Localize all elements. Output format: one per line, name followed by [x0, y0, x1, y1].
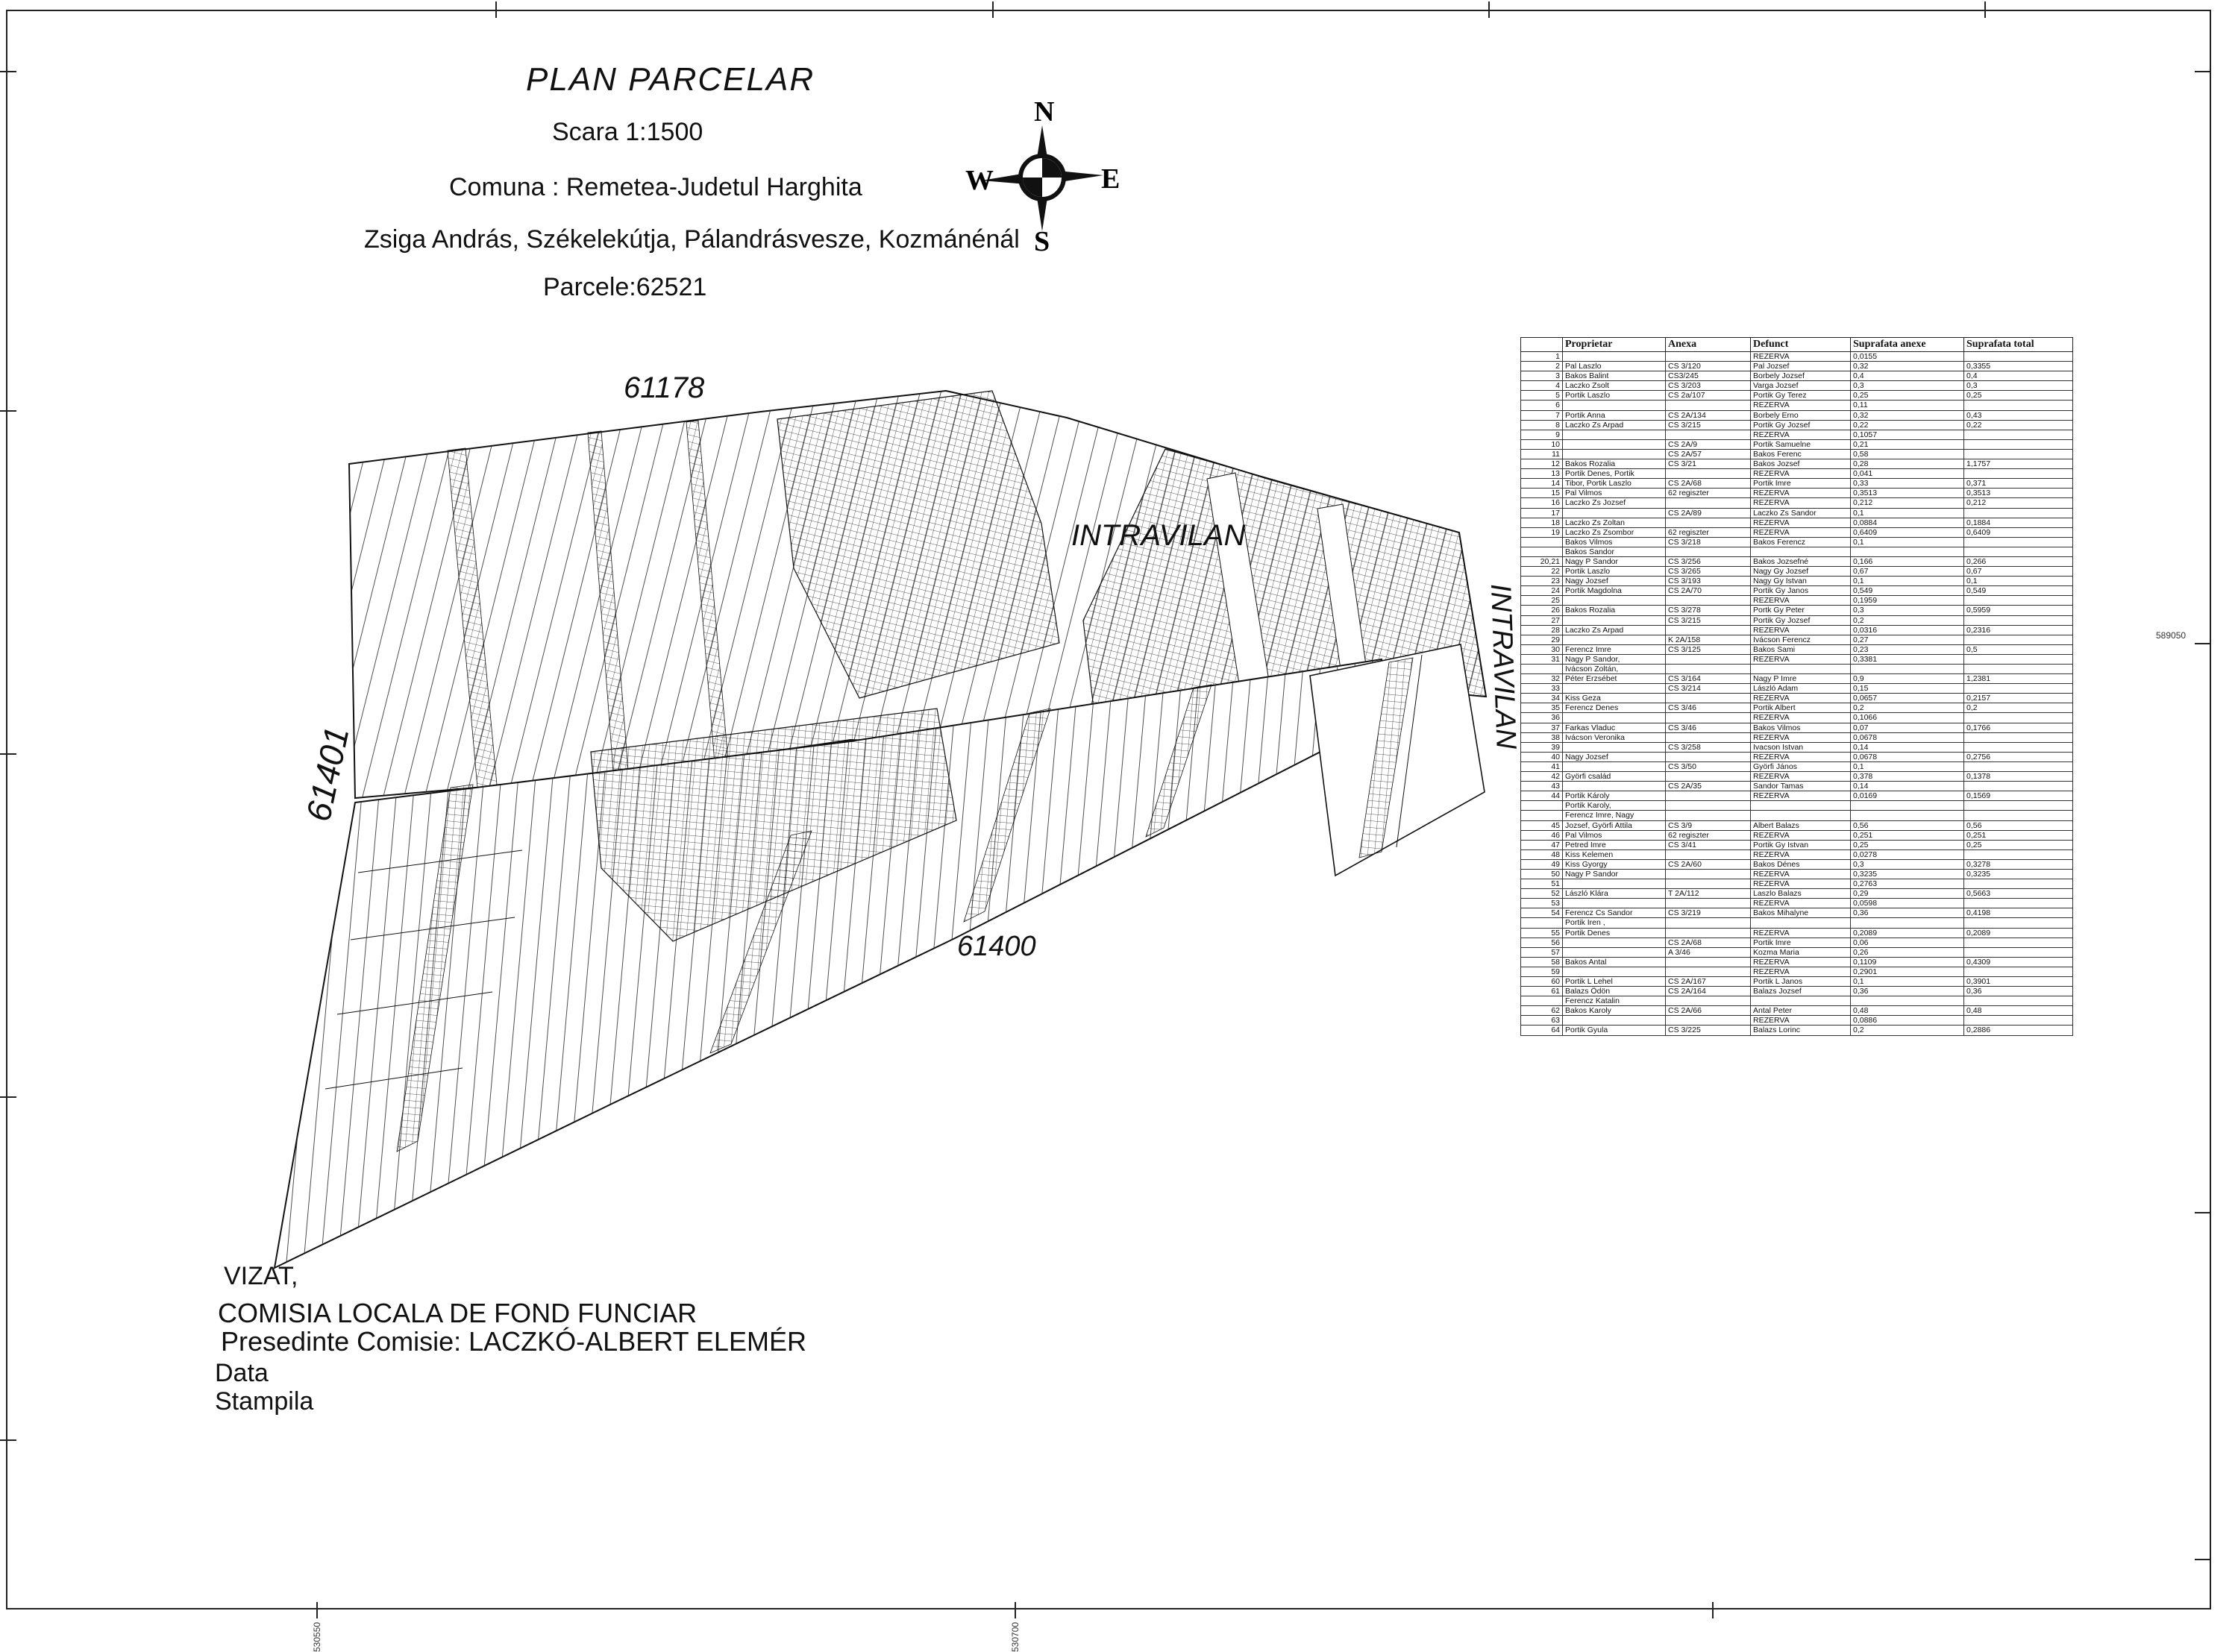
- cell-num: 47: [1521, 840, 1563, 849]
- cell-num: 6: [1521, 401, 1563, 410]
- cell-anexa: [1666, 713, 1751, 723]
- cell-suprafata-total: [1964, 449, 2073, 459]
- cell-suprafata-total: [1964, 430, 2073, 439]
- cell-defunct: Bakos Vilmos: [1751, 723, 1851, 732]
- cell-suprafata-total: 0,3235: [1964, 869, 2073, 879]
- cell-anexa: CS 3/215: [1666, 420, 1751, 430]
- cell-anexa: CS 2a/107: [1666, 391, 1751, 401]
- cell-num: 13: [1521, 469, 1563, 479]
- table-row: Ivácson Zoltán,: [1521, 665, 2073, 674]
- cell-defunct: László Adam: [1751, 684, 1851, 694]
- table-row: 6 REZERVA 0,11: [1521, 401, 2073, 410]
- cell-suprafata-anexe: 0,0886: [1851, 1016, 1964, 1026]
- cell-suprafata-total: [1964, 732, 2073, 742]
- cell-defunct: REZERVA: [1751, 791, 1851, 801]
- cell-defunct: REZERVA: [1751, 957, 1851, 967]
- table-row: 31 Nagy P Sandor, REZERVA 0,3381: [1521, 654, 2073, 664]
- table-row: 59 REZERVA 0,2901: [1521, 967, 2073, 976]
- cell-suprafata-total: 0,22: [1964, 420, 2073, 430]
- cell-defunct: Bakos Ferencz: [1751, 537, 1851, 547]
- cell-suprafata-total: [1964, 401, 2073, 410]
- cell-anexa: [1666, 732, 1751, 742]
- cell-defunct: Balazs Lorinc: [1751, 1026, 1851, 1035]
- cell-suprafata-anexe: 0,26: [1851, 947, 1964, 957]
- road-number-bottom: 61400: [957, 931, 1036, 963]
- parcel-group-right: [1310, 644, 1485, 876]
- table-row: 36 REZERVA 0,1066: [1521, 713, 2073, 723]
- table-row: 30 Ferencz Imre CS 3/125 Bakos Sami 0,23…: [1521, 644, 2073, 654]
- cell-anexa: CS 3/120: [1666, 362, 1751, 371]
- cell-defunct: Portik Gy Terez: [1751, 391, 1851, 401]
- cell-suprafata-total: [1964, 761, 2073, 771]
- cell-defunct: REZERVA: [1751, 928, 1851, 938]
- cell-suprafata-total: 0,36: [1964, 987, 2073, 996]
- cell-anexa: CS 3/125: [1666, 644, 1751, 654]
- cell-anexa: CS 3/265: [1666, 567, 1751, 577]
- table-row: 45 Jozsef, Györfi Attila CS 3/9 Albert B…: [1521, 820, 2073, 830]
- cell-defunct: REZERVA: [1751, 489, 1851, 498]
- cell-anexa: [1666, 694, 1751, 703]
- cell-proprietar: Portik Magdolna: [1563, 586, 1666, 596]
- cell-proprietar: [1563, 449, 1666, 459]
- cell-defunct: REZERVA: [1751, 967, 1851, 976]
- cell-anexa: [1666, 772, 1751, 782]
- frame-tick: [0, 410, 16, 412]
- table-row: 55 Portik Denes REZERVA 0,2089 0,2089: [1521, 928, 2073, 938]
- cell-defunct: Bakos Dénes: [1751, 859, 1851, 869]
- cell-proprietar: Nagy Jozsef: [1563, 577, 1666, 586]
- cell-defunct: REZERVA: [1751, 869, 1851, 879]
- cell-suprafata-anexe: 0,3: [1851, 859, 1964, 869]
- table-row: 49 Kiss Gyorgy CS 2A/60 Bakos Dénes 0,3 …: [1521, 859, 2073, 869]
- cell-suprafata-total: [1964, 918, 2073, 928]
- cell-num: 42: [1521, 772, 1563, 782]
- cell-num: 50: [1521, 869, 1563, 879]
- cell-suprafata-total: 1,1757: [1964, 459, 2073, 469]
- grid-northing-label: 589050: [2156, 630, 2186, 641]
- cell-proprietar: [1563, 782, 1666, 791]
- table-row: 34 Kiss Geza REZERVA 0,0657 0,2157: [1521, 694, 2073, 703]
- cell-anexa: [1666, 869, 1751, 879]
- grid-easting-label: 530700: [1010, 1622, 1021, 1652]
- table-row: 54 Ferencz Cs Sandor CS 3/219 Bakos Miha…: [1521, 908, 2073, 918]
- cell-suprafata-anexe: 0,041: [1851, 469, 1964, 479]
- cell-anexa: [1666, 811, 1751, 820]
- cell-num: [1521, 665, 1563, 674]
- cell-anexa: [1666, 469, 1751, 479]
- cell-num: 44: [1521, 791, 1563, 801]
- cell-anexa: CS 3/256: [1666, 556, 1751, 566]
- cell-anexa: CS 3/164: [1666, 674, 1751, 684]
- cell-suprafata-anexe: 0,11: [1851, 401, 1964, 410]
- cell-proprietar: [1563, 596, 1666, 606]
- table-row: Bakos Vilmos CS 3/218 Bakos Ferencz 0,1: [1521, 537, 2073, 547]
- cell-suprafata-total: [1964, 508, 2073, 518]
- cell-proprietar: [1563, 401, 1666, 410]
- cell-suprafata-total: 0,2: [1964, 703, 2073, 713]
- cell-suprafata-anexe: 0,0278: [1851, 849, 1964, 859]
- cell-suprafata-total: 0,212: [1964, 498, 2073, 508]
- data-label: Data: [215, 1359, 269, 1388]
- cell-defunct: REZERVA: [1751, 469, 1851, 479]
- table-row: 23 Nagy Jozsef CS 3/193 Nagy Gy Istvan 0…: [1521, 577, 2073, 586]
- cell-suprafata-anexe: [1851, 996, 1964, 1006]
- cell-suprafata-total: 0,266: [1964, 556, 2073, 566]
- cell-proprietar: Péter Erzsébet: [1563, 674, 1666, 684]
- cell-suprafata-anexe: 0,1057: [1851, 430, 1964, 439]
- cell-suprafata-anexe: 0,32: [1851, 410, 1964, 420]
- cell-suprafata-anexe: 0,0657: [1851, 694, 1964, 703]
- cell-num: 45: [1521, 820, 1563, 830]
- cell-proprietar: Ferencz Katalin: [1563, 996, 1666, 1006]
- table-row: 53 REZERVA 0,0598: [1521, 899, 2073, 908]
- table-row: 10 CS 2A/9 Portik Samuelne 0,21: [1521, 439, 2073, 449]
- cell-anexa: [1666, 801, 1751, 811]
- table-row: 5 Portik Laszlo CS 2a/107 Portik Gy Tere…: [1521, 391, 2073, 401]
- cell-proprietar: László Klára: [1563, 889, 1666, 899]
- cell-suprafata-anexe: 0,2: [1851, 703, 1964, 713]
- cell-proprietar: Portik Karoly,: [1563, 801, 1666, 811]
- table-row: 52 László Klára T 2A/112 Laszlo Balazs 0…: [1521, 889, 2073, 899]
- cell-defunct: Portik Albert: [1751, 703, 1851, 713]
- table-row: 20,21 Nagy P Sandor CS 3/256 Bakos Jozse…: [1521, 556, 2073, 566]
- cell-num: 62: [1521, 1006, 1563, 1016]
- cell-suprafata-anexe: [1851, 665, 1964, 674]
- cell-defunct: REZERVA: [1751, 1016, 1851, 1026]
- cell-num: 29: [1521, 635, 1563, 644]
- page-title: PLAN PARCELAR: [526, 61, 815, 98]
- table-row: Ferencz Imre, Nagy: [1521, 811, 2073, 820]
- cell-defunct: REZERVA: [1751, 352, 1851, 362]
- cell-suprafata-total: [1964, 801, 2073, 811]
- cell-num: 35: [1521, 703, 1563, 713]
- cell-defunct: Nagy P Imre: [1751, 674, 1851, 684]
- cell-suprafata-total: 0,4309: [1964, 957, 2073, 967]
- cell-suprafata-anexe: 0,58: [1851, 449, 1964, 459]
- header-anexa: Anexa: [1666, 338, 1751, 352]
- grid-easting-label: 530550: [312, 1622, 322, 1652]
- frame-tick: [1015, 1602, 1016, 1618]
- cell-suprafata-total: 0,56: [1964, 820, 2073, 830]
- cell-anexa: CS 2A/89: [1666, 508, 1751, 518]
- cell-defunct: Kozma Maria: [1751, 947, 1851, 957]
- cell-num: 61: [1521, 987, 1563, 996]
- cell-suprafata-anexe: 0,28: [1851, 459, 1964, 469]
- cell-suprafata-anexe: 0,27: [1851, 635, 1964, 644]
- cell-num: 26: [1521, 606, 1563, 615]
- cell-suprafata-anexe: 0,07: [1851, 723, 1964, 732]
- cell-proprietar: Pal Laszlo: [1563, 362, 1666, 371]
- table-row: Portik Karoly,: [1521, 801, 2073, 811]
- cell-proprietar: Jozsef, Györfi Attila: [1563, 820, 1666, 830]
- table-row: 51 REZERVA 0,2763: [1521, 879, 2073, 889]
- cell-suprafata-total: 0,25: [1964, 840, 2073, 849]
- cell-suprafata-anexe: 0,56: [1851, 820, 1964, 830]
- table-row: 26 Bakos Rozalia CS 3/278 Portk Gy Peter…: [1521, 606, 2073, 615]
- cell-defunct: Bakos Sami: [1751, 644, 1851, 654]
- cell-suprafata-anexe: 0,1: [1851, 977, 1964, 987]
- cell-suprafata-anexe: 0,378: [1851, 772, 1964, 782]
- table-row: 4 Laczko Zsolt CS 3/203 Varga Jozsef 0,3…: [1521, 381, 2073, 391]
- cell-anexa: 62 regiszter: [1666, 527, 1751, 537]
- cell-suprafata-anexe: 0,3381: [1851, 654, 1964, 664]
- table-row: 29 K 2A/158 Ivácson Ferencz 0,27: [1521, 635, 2073, 644]
- table-row: 1 REZERVA 0,0155: [1521, 352, 2073, 362]
- cell-suprafata-anexe: 0,212: [1851, 498, 1964, 508]
- cell-proprietar: Bakos Rozalia: [1563, 459, 1666, 469]
- cell-num: [1521, 996, 1563, 1006]
- cell-suprafata-total: 0,2089: [1964, 928, 2073, 938]
- cell-proprietar: Laczko Zs Arpad: [1563, 625, 1666, 635]
- frame-tick: [0, 1096, 16, 1098]
- table-row: 17 CS 2A/89 Laczko Zs Sandor 0,1: [1521, 508, 2073, 518]
- table-row: 60 Portik L Lehel CS 2A/167 Portik L Jan…: [1521, 977, 2073, 987]
- cell-num: 25: [1521, 596, 1563, 606]
- table-row: 13 Portik Denes, Portik REZERVA 0,041: [1521, 469, 2073, 479]
- cell-num: 51: [1521, 879, 1563, 889]
- cell-proprietar: [1563, 439, 1666, 449]
- cell-proprietar: Ivácson Veronika: [1563, 732, 1666, 742]
- cell-suprafata-anexe: 0,21: [1851, 439, 1964, 449]
- cell-proprietar: Portik Denes, Portik: [1563, 469, 1666, 479]
- cell-anexa: CS 3/218: [1666, 537, 1751, 547]
- table-row: 24 Portik Magdolna CS 2A/70 Portik Gy Ja…: [1521, 586, 2073, 596]
- cell-proprietar: Portik Laszlo: [1563, 567, 1666, 577]
- presedinte-line: Presedinte Comisie: LACZKÓ-ALBERT ELEMÉR: [221, 1326, 806, 1357]
- table-row: 37 Farkas Vladuc CS 3/46 Bakos Vilmos 0,…: [1521, 723, 2073, 732]
- table-row: 42 Györfi család REZERVA 0,378 0,1378: [1521, 772, 2073, 782]
- cell-num: 32: [1521, 674, 1563, 684]
- cell-proprietar: Tibor, Portik Laszlo: [1563, 479, 1666, 489]
- cell-anexa: CS 3/50: [1666, 761, 1751, 771]
- cell-anexa: CS 3/41: [1666, 840, 1751, 849]
- cell-num: 17: [1521, 508, 1563, 518]
- cell-anexa: CS 2A/68: [1666, 479, 1751, 489]
- cell-num: 24: [1521, 586, 1563, 596]
- cell-num: 46: [1521, 830, 1563, 840]
- frame-tick: [1984, 1, 1986, 18]
- intravilan-label-right: INTRAVILAN: [1484, 583, 1522, 750]
- cell-anexa: [1666, 665, 1751, 674]
- cell-defunct: Nagy Gy Jozsef: [1751, 567, 1851, 577]
- cell-defunct: Portik Gy Janos: [1751, 586, 1851, 596]
- cell-proprietar: Portik Károly: [1563, 791, 1666, 801]
- cell-num: 57: [1521, 947, 1563, 957]
- cell-defunct: Györfi János: [1751, 761, 1851, 771]
- cell-num: 3: [1521, 371, 1563, 381]
- map-scale: Scara 1:1500: [552, 118, 703, 147]
- cell-suprafata-anexe: 0,1: [1851, 508, 1964, 518]
- table-row: 3 Bakos Balint CS3/245 Borbely Jozsef 0,…: [1521, 371, 2073, 381]
- cell-suprafata-total: [1964, 782, 2073, 791]
- cell-defunct: REZERVA: [1751, 772, 1851, 782]
- cell-suprafata-anexe: [1851, 918, 1964, 928]
- compass-star: [982, 125, 1103, 231]
- cell-defunct: Nagy Gy Istvan: [1751, 577, 1851, 586]
- table-row: 35 Ferencz Denes CS 3/46 Portik Albert 0…: [1521, 703, 2073, 713]
- parcel-number-line: Parcele:62521: [543, 273, 706, 302]
- frame-tick: [2195, 71, 2211, 72]
- cell-proprietar: Ferencz Imre: [1563, 644, 1666, 654]
- cell-suprafata-total: 0,1569: [1964, 791, 2073, 801]
- table-row: 9 REZERVA 0,1057: [1521, 430, 2073, 439]
- cell-num: 11: [1521, 449, 1563, 459]
- cell-defunct: Portik Gy Istvan: [1751, 840, 1851, 849]
- cell-num: 39: [1521, 742, 1563, 752]
- cell-defunct: Balazs Jozsef: [1751, 987, 1851, 996]
- cell-defunct: Varga Jozsef: [1751, 381, 1851, 391]
- table-row: 16 Laczko Zs Jozsef REZERVA 0,212 0,212: [1521, 498, 2073, 508]
- cell-suprafata-anexe: 0,14: [1851, 782, 1964, 791]
- cell-suprafata-anexe: 0,3: [1851, 381, 1964, 391]
- cell-defunct: Portik Samuelne: [1751, 439, 1851, 449]
- cell-proprietar: Ferencz Cs Sandor: [1563, 908, 1666, 918]
- cell-defunct: Ivácson Ferencz: [1751, 635, 1851, 644]
- cell-suprafata-anexe: 0,1959: [1851, 596, 1964, 606]
- cell-anexa: CS 2A/35: [1666, 782, 1751, 791]
- cell-defunct: [1751, 547, 1851, 556]
- header-suprafata-anexe: Suprafata anexe: [1851, 338, 1964, 352]
- cell-suprafata-anexe: 0,2763: [1851, 879, 1964, 889]
- cell-defunct: REZERVA: [1751, 498, 1851, 508]
- cell-num: 63: [1521, 1016, 1563, 1026]
- cell-suprafata-total: 0,3: [1964, 381, 2073, 391]
- cell-anexa: [1666, 849, 1751, 859]
- cell-suprafata-total: [1964, 947, 2073, 957]
- compass-rose: N S W E: [964, 95, 1122, 254]
- cell-suprafata-anexe: 0,1: [1851, 761, 1964, 771]
- table-row: 56 CS 2A/68 Portik Imre 0,06: [1521, 938, 2073, 947]
- cell-suprafata-anexe: [1851, 547, 1964, 556]
- cell-suprafata-anexe: 0,67: [1851, 567, 1964, 577]
- compass-south-label: S: [1034, 226, 1050, 254]
- cell-proprietar: [1563, 430, 1666, 439]
- cell-proprietar: Bakos Rozalia: [1563, 606, 1666, 615]
- cell-proprietar: Pal Vilmos: [1563, 489, 1666, 498]
- cell-num: 58: [1521, 957, 1563, 967]
- cell-proprietar: Bakos Vilmos: [1563, 537, 1666, 547]
- cell-num: 2: [1521, 362, 1563, 371]
- cell-suprafata-anexe: 0,14: [1851, 742, 1964, 752]
- cell-anexa: [1666, 654, 1751, 664]
- cell-num: 7: [1521, 410, 1563, 420]
- cell-defunct: REZERVA: [1751, 879, 1851, 889]
- cell-defunct: REZERVA: [1751, 732, 1851, 742]
- cell-defunct: Portik L Janos: [1751, 977, 1851, 987]
- table-row: 39 CS 3/258 Ivacson Istvan 0,14: [1521, 742, 2073, 752]
- cell-anexa: CS 2A/167: [1666, 977, 1751, 987]
- frame-tick: [0, 1439, 16, 1441]
- cell-num: 4: [1521, 381, 1563, 391]
- cell-suprafata-total: 0,48: [1964, 1006, 2073, 1016]
- cell-suprafata-total: 0,25: [1964, 391, 2073, 401]
- frame-tick: [0, 71, 16, 72]
- cell-num: 41: [1521, 761, 1563, 771]
- cell-num: [1521, 801, 1563, 811]
- cell-suprafata-anexe: 0,0169: [1851, 791, 1964, 801]
- cell-suprafata-total: 0,2886: [1964, 1026, 2073, 1035]
- cell-suprafata-anexe: 0,36: [1851, 987, 1964, 996]
- cell-suprafata-total: [1964, 635, 2073, 644]
- cell-defunct: REZERVA: [1751, 430, 1851, 439]
- cell-defunct: Borbely Jozsef: [1751, 371, 1851, 381]
- cell-proprietar: Bakos Antal: [1563, 957, 1666, 967]
- cell-suprafata-anexe: 0,3513: [1851, 489, 1964, 498]
- cell-suprafata-total: 1,2381: [1964, 674, 2073, 684]
- cell-suprafata-anexe: 0,06: [1851, 938, 1964, 947]
- cell-anexa: CS 3/225: [1666, 1026, 1751, 1035]
- cell-proprietar: Portik Iren ,: [1563, 918, 1666, 928]
- cell-defunct: Ivacson Istvan: [1751, 742, 1851, 752]
- table-row: 44 Portik Károly REZERVA 0,0169 0,1569: [1521, 791, 2073, 801]
- cell-num: 54: [1521, 908, 1563, 918]
- cell-anexa: CS 2A/70: [1666, 586, 1751, 596]
- cell-proprietar: Laczko Zs Arpad: [1563, 420, 1666, 430]
- cell-defunct: Portik Imre: [1751, 479, 1851, 489]
- cell-anexa: CS 3/215: [1666, 615, 1751, 625]
- cell-num: 12: [1521, 459, 1563, 469]
- cell-defunct: REZERVA: [1751, 596, 1851, 606]
- cell-suprafata-anexe: 0,9: [1851, 674, 1964, 684]
- cell-num: 60: [1521, 977, 1563, 987]
- cell-anexa: CS 2A/164: [1666, 987, 1751, 996]
- cell-suprafata-total: 0,3513: [1964, 489, 2073, 498]
- cell-anexa: [1666, 967, 1751, 976]
- table-row: Portik Iren ,: [1521, 918, 2073, 928]
- cell-proprietar: Nagy P Sandor,: [1563, 654, 1666, 664]
- compass-east-label: E: [1101, 163, 1120, 195]
- cell-defunct: Portik Gy Jozsef: [1751, 615, 1851, 625]
- cell-suprafata-anexe: 0,1066: [1851, 713, 1964, 723]
- cell-proprietar: Farkas Vladuc: [1563, 723, 1666, 732]
- cell-suprafata-total: [1964, 547, 2073, 556]
- table-row: 41 CS 3/50 Györfi János 0,1: [1521, 761, 2073, 771]
- cell-suprafata-total: [1964, 537, 2073, 547]
- cell-suprafata-anexe: 0,0884: [1851, 518, 1964, 527]
- cell-suprafata-total: [1964, 615, 2073, 625]
- cell-anexa: [1666, 498, 1751, 508]
- table-row: 2 Pal Laszlo CS 3/120 Pal Jozsef 0,32 0,…: [1521, 362, 2073, 371]
- cell-num: 19: [1521, 527, 1563, 537]
- cell-num: 52: [1521, 889, 1563, 899]
- cell-proprietar: [1563, 899, 1666, 908]
- cell-defunct: REZERVA: [1751, 625, 1851, 635]
- parcel-table: Proprietar Anexa Defunct Suprafata anexe…: [1520, 337, 2073, 1036]
- table-row: 22 Portik Laszlo CS 3/265 Nagy Gy Jozsef…: [1521, 567, 2073, 577]
- cell-proprietar: [1563, 879, 1666, 889]
- cell-anexa: A 3/46: [1666, 947, 1751, 957]
- frame-tick: [2195, 643, 2211, 644]
- cell-suprafata-anexe: 0,0155: [1851, 352, 1964, 362]
- cell-anexa: CS 3/46: [1666, 723, 1751, 732]
- cell-suprafata-anexe: 0,1: [1851, 537, 1964, 547]
- table-row: 8 Laczko Zs Arpad CS 3/215 Portik Gy Joz…: [1521, 420, 2073, 430]
- cell-suprafata-total: [1964, 967, 2073, 976]
- cell-defunct: Portik Gy Jozsef: [1751, 420, 1851, 430]
- cell-num: 55: [1521, 928, 1563, 938]
- cell-proprietar: Laczko Zs Zsombor: [1563, 527, 1666, 537]
- cell-defunct: Laszlo Balazs: [1751, 889, 1851, 899]
- cell-suprafata-anexe: 0,1109: [1851, 957, 1964, 967]
- cell-proprietar: [1563, 684, 1666, 694]
- cell-proprietar: [1563, 967, 1666, 976]
- cell-anexa: CS 3/214: [1666, 684, 1751, 694]
- table-header-row: Proprietar Anexa Defunct Suprafata anexe…: [1521, 338, 2073, 352]
- cell-anexa: [1666, 1016, 1751, 1026]
- cell-suprafata-anexe: 0,22: [1851, 420, 1964, 430]
- cell-defunct: REZERVA: [1751, 527, 1851, 537]
- cell-anexa: CS 2A/66: [1666, 1006, 1751, 1016]
